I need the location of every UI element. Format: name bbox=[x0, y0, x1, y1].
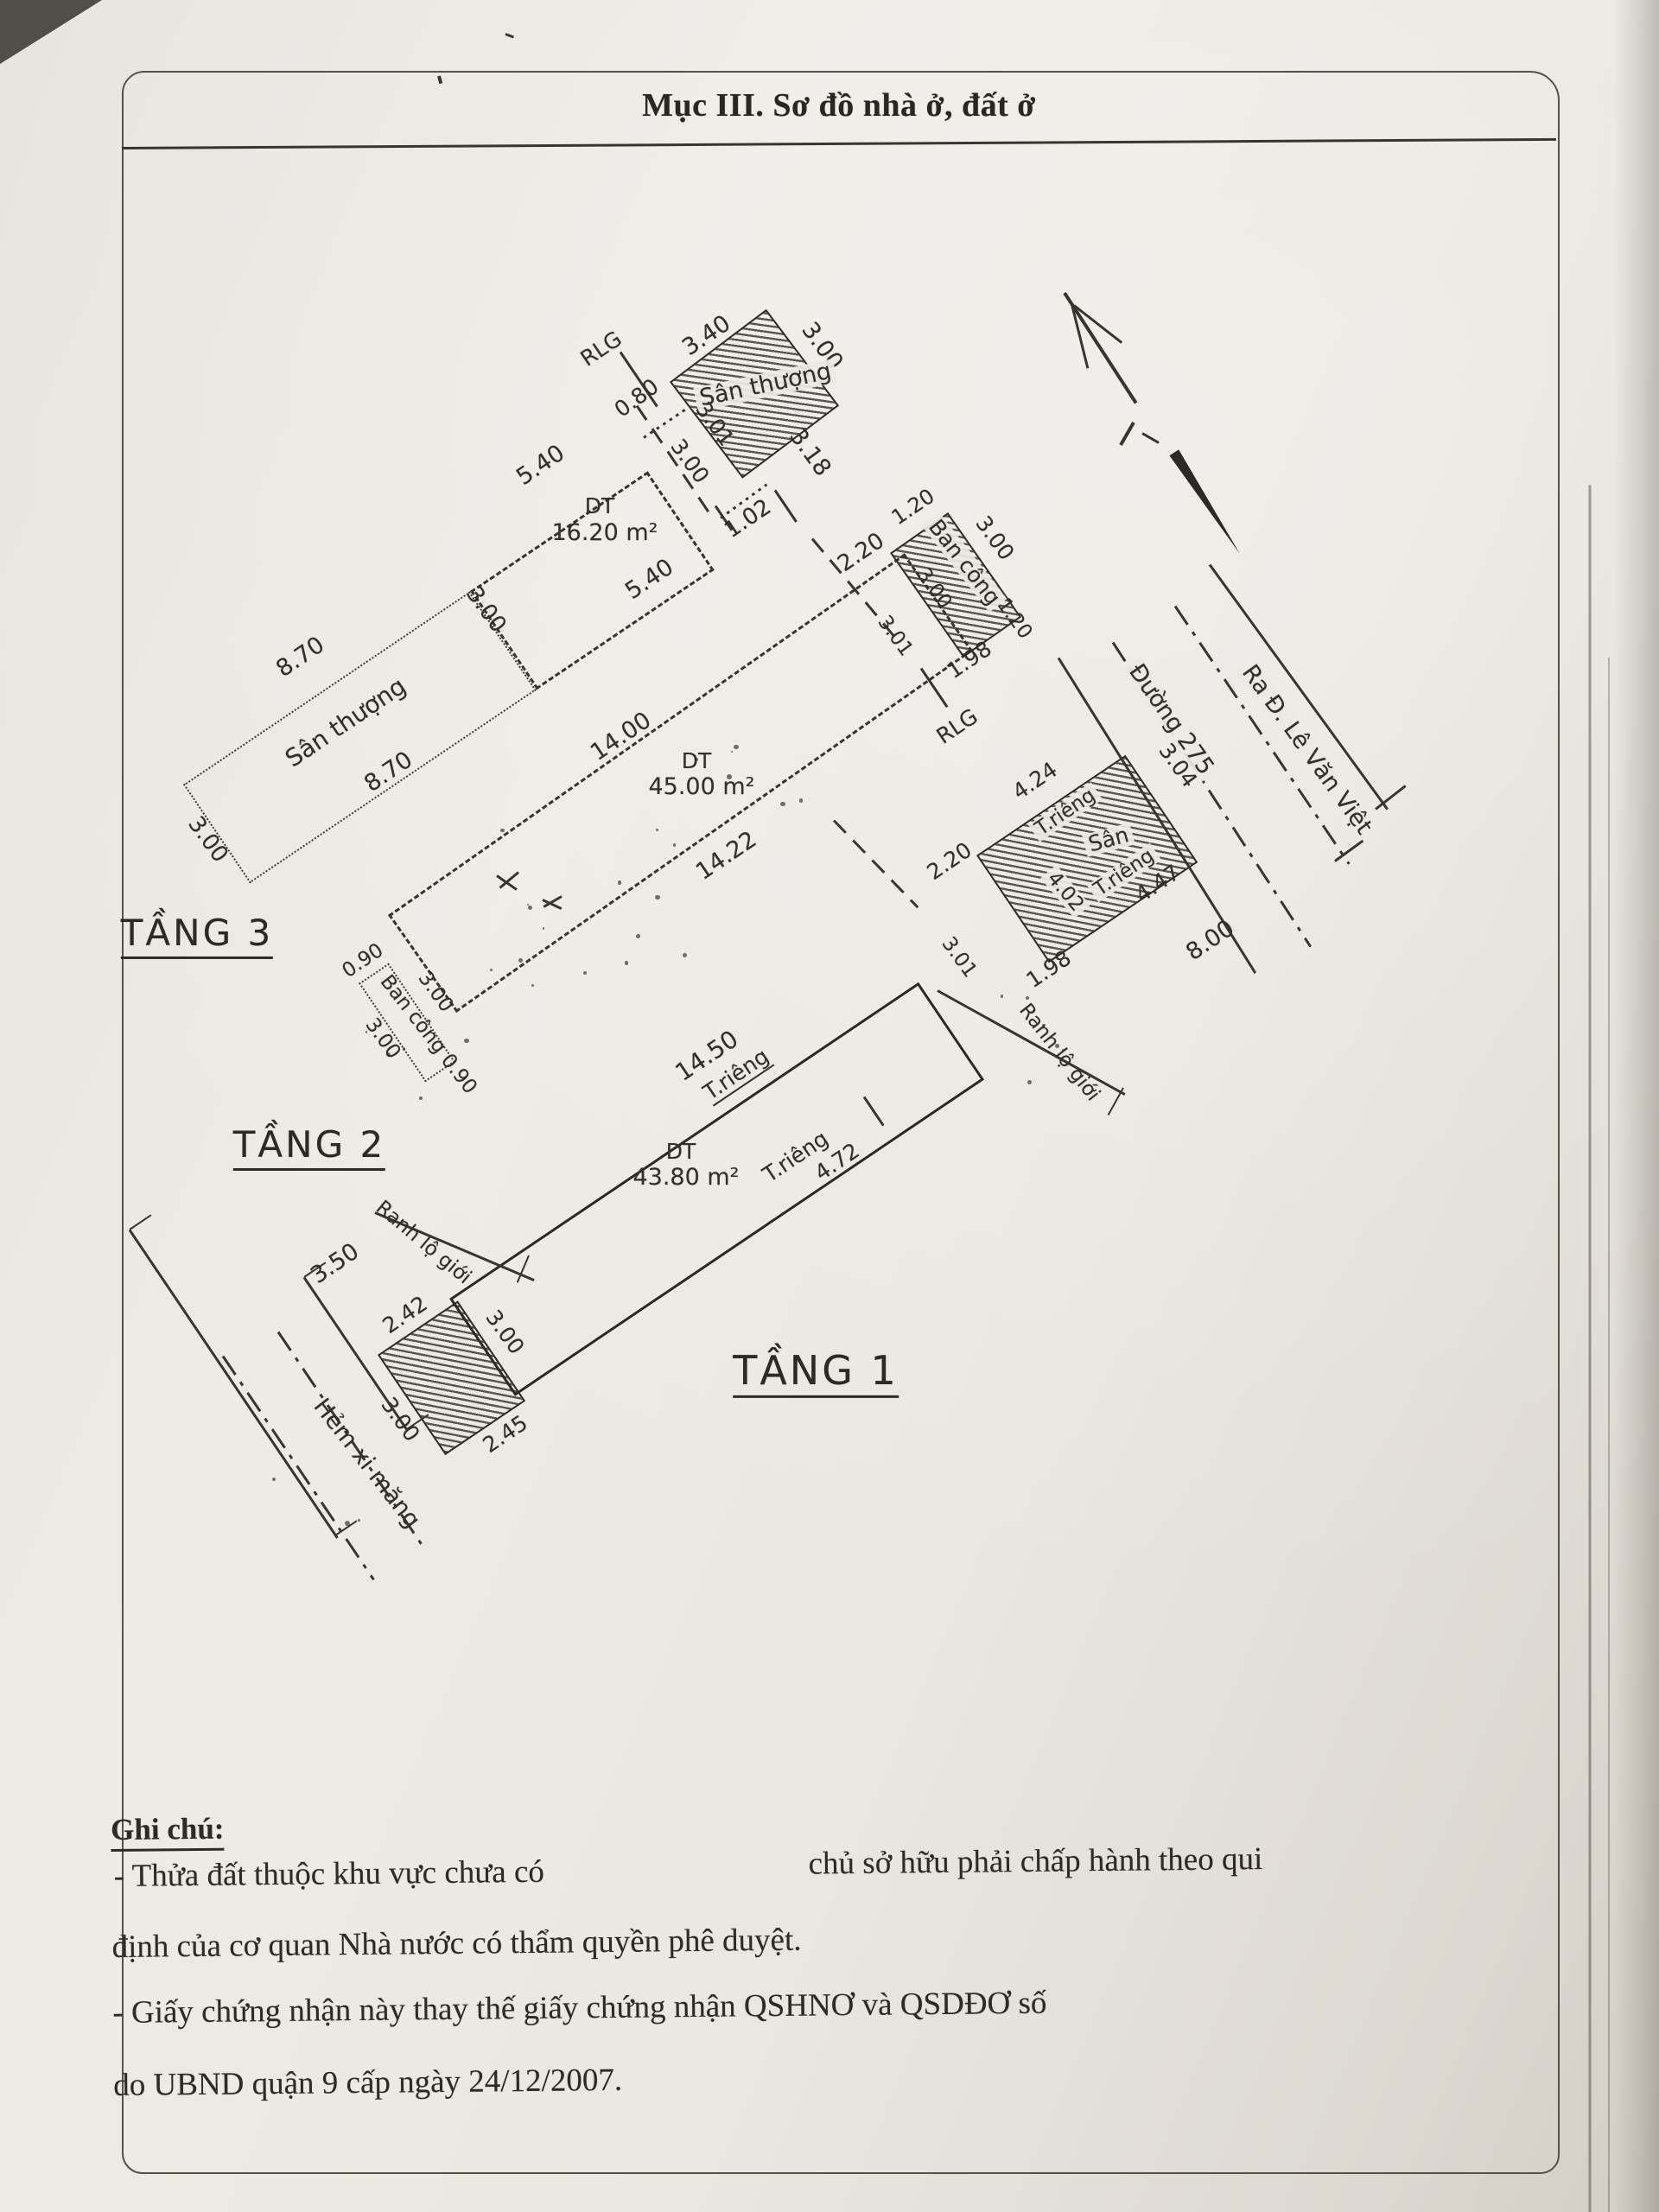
note-line-1-left: - Thửa đất thuộc khu vực chưa có bbox=[114, 1853, 545, 1895]
note-line-3: - Giấy chứng nhận này thay thế giấy chứn… bbox=[112, 1985, 1046, 2031]
scanned-document: Mục III. Sơ đồ nhà ở, đất ở RLG3.403.00S… bbox=[0, 0, 1659, 2212]
note-line-1-right: chủ sở hữu phải chấp hành theo qui bbox=[808, 1840, 1262, 1883]
notes-heading: Ghi chú: bbox=[111, 1812, 225, 1852]
note-line-2: định của cơ quan Nhà nước có thẩm quyền … bbox=[111, 1922, 801, 1966]
note-line-4: do UBND quận 9 cấp ngày 24/12/2007. bbox=[113, 2062, 622, 2104]
notes-block: Ghi chú: - Thửa đất thuộc khu vực chưa c… bbox=[0, 0, 1659, 2212]
